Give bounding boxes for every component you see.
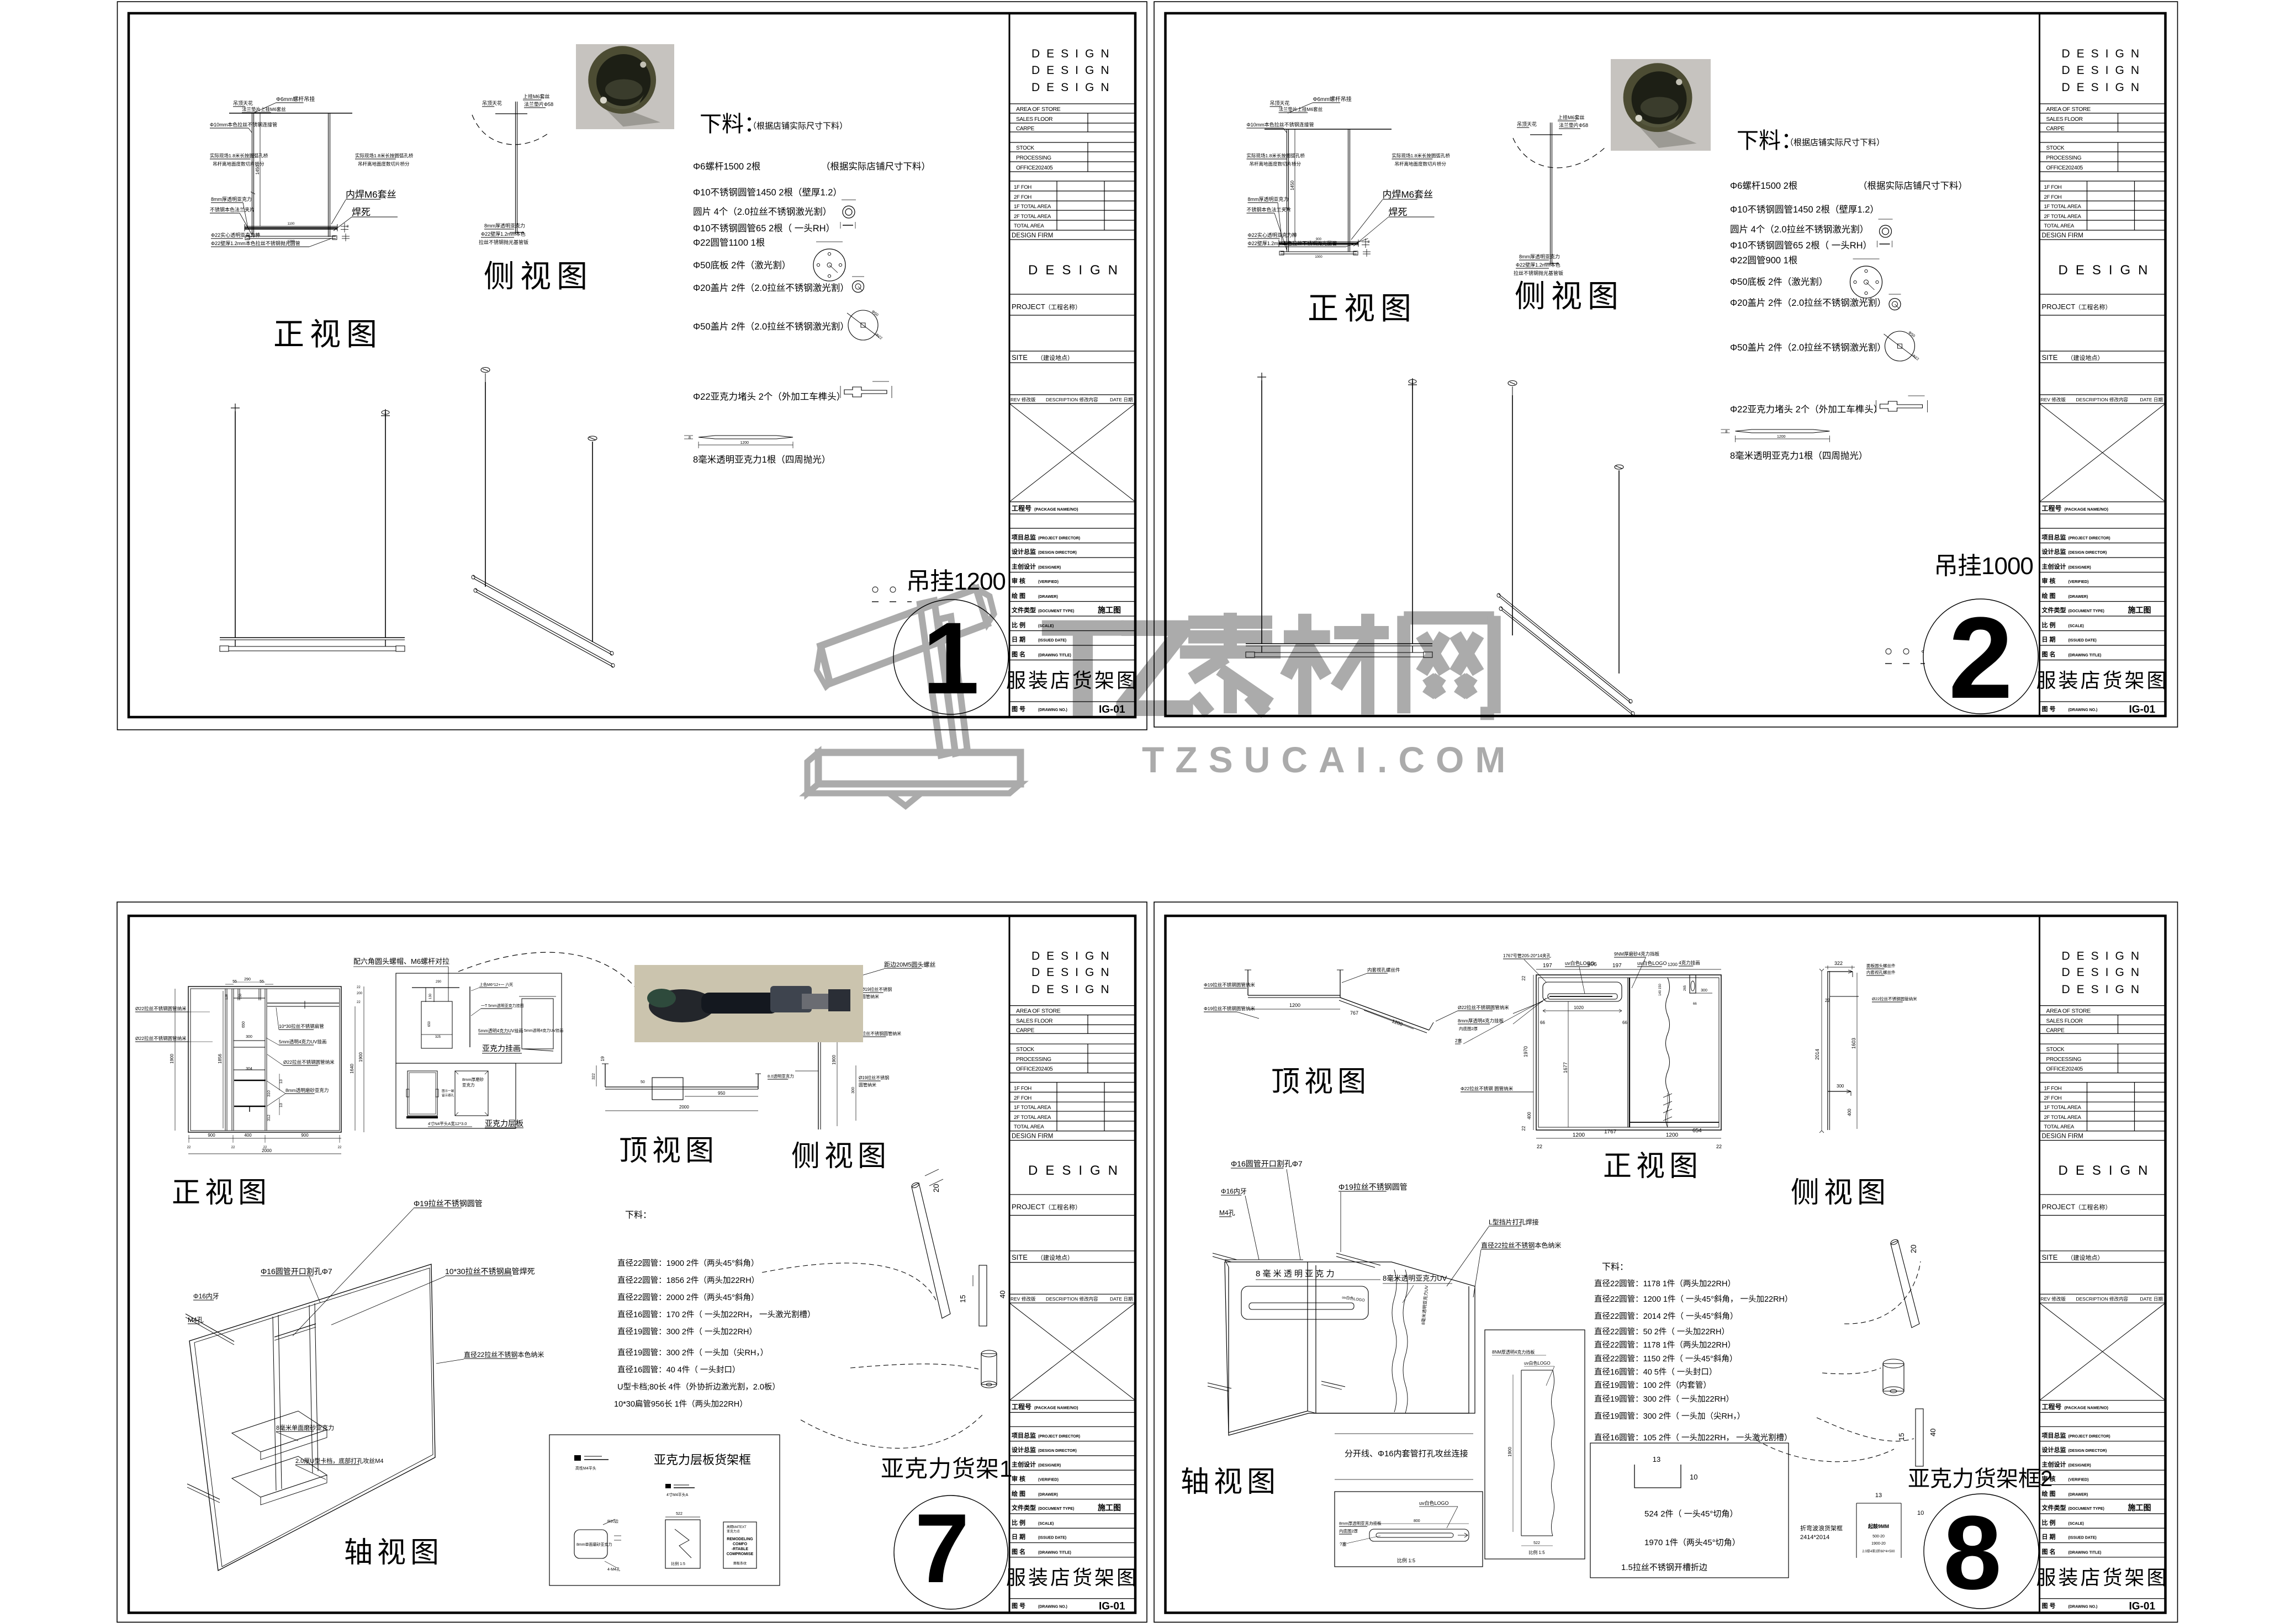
svg-text:DESCRIPTION 修改内容: DESCRIPTION 修改内容 [2076,397,2129,402]
svg-text:项目总监: 项目总监 [2042,533,2066,541]
svg-text:Ø22拉丝不锈钢圆管纳米: Ø22拉丝不锈钢圆管纳米 [1458,1005,1509,1010]
svg-text:项目总监: 项目总监 [1012,533,1036,541]
svg-text:DESCRIPTION 修改内容: DESCRIPTION 修改内容 [2076,1296,2129,1302]
svg-text:OFFICE202405: OFFICE202405 [1016,165,1053,171]
svg-text:300: 300 [1837,1084,1844,1089]
svg-text:22: 22 [338,1146,342,1149]
svg-text:654: 654 [1692,1128,1702,1134]
svg-text:图 号: 图 号 [1012,706,1025,713]
svg-text:2000: 2000 [262,1148,272,1153]
svg-text:2014: 2014 [1814,1049,1820,1060]
svg-text:(DESIGNER): (DESIGNER) [2068,566,2091,570]
svg-text:uv白色LOGO: uv白色LOGO [1565,960,1595,966]
svg-text:4寸N4平头A宽12*3.0: 4寸N4平头A宽12*3.0 [428,1121,467,1126]
svg-text:PROJECT: PROJECT [1012,1203,1045,1211]
svg-text:1677: 1677 [1563,1062,1568,1073]
svg-text:900: 900 [301,1133,309,1138]
svg-text:折弯波浪货架框: 折弯波浪货架框 [1800,1524,1843,1532]
svg-text:STOCK: STOCK [2046,145,2065,151]
svg-text:(VERIFIED): (VERIFIED) [2068,1478,2089,1482]
svg-text:8mm厚透明亚克力: 8mm厚透明亚克力 [1519,253,1560,259]
svg-text:面板圆头螺丝件: 面板圆头螺丝件 [1866,963,1896,968]
svg-text:1767号管205-20*14夹孔: 1767号管205-20*14夹孔 [1503,953,1551,958]
svg-text:Φ10不锈钢圆管1450 2根（壁厚1.2）: Φ10不锈钢圆管1450 2根（壁厚1.2） [693,187,842,198]
svg-text:吊杆离地面度数切片桥分: 吊杆离地面度数切片桥分 [213,161,264,167]
svg-text:1F TOTAL AREA: 1F TOTAL AREA [2044,1105,2082,1111]
svg-text:20: 20 [1909,1244,1918,1253]
svg-text:DATE 日期: DATE 日期 [1110,397,1133,402]
svg-text:DESIGN: DESIGN [2062,64,2146,77]
svg-text:DESIGN: DESIGN [2062,983,2146,996]
svg-text:Ø19拉丝不锈钢: Ø19拉丝不锈钢 [859,1075,889,1080]
svg-text:uv白色LOGO: uv白色LOGO [1524,1360,1551,1366]
svg-text:高精M4TEXT: 高精M4TEXT [727,1525,747,1529]
svg-text:正视图: 正视图 [1603,1150,1702,1182]
svg-text:正视图: 正视图 [273,317,383,352]
svg-text:Φ50盖片 2件（2.0拉丝不锈钢激光割）: Φ50盖片 2件（2.0拉丝不锈钢激光割） [693,321,849,332]
svg-text:SITE: SITE [2042,353,2058,362]
svg-text:(PACKAGE NAME/NO): (PACKAGE NAME/NO) [1034,507,1078,512]
svg-text:DATE 日期: DATE 日期 [2140,1296,2163,1302]
svg-text:1F TOTAL AREA: 1F TOTAL AREA [1014,1105,1051,1111]
svg-text:1F FOH: 1F FOH [1014,1085,1031,1091]
svg-text:8mm厚透明亚克力挂板: 8mm厚透明亚克力挂板 [1339,1520,1382,1526]
svg-text:项目总监: 项目总监 [1012,1431,1036,1439]
svg-text:950: 950 [718,1091,726,1096]
svg-text:审 核: 审 核 [1012,1475,1025,1482]
svg-text:起鼓9MM: 起鼓9MM [1868,1523,1889,1529]
svg-text:侧视图: 侧视图 [1515,279,1624,314]
svg-text:(VERIFIED): (VERIFIED) [1038,1478,1059,1482]
svg-text:300: 300 [246,1035,252,1039]
svg-text:(ISSUED DATE): (ISSUED DATE) [2068,639,2097,643]
svg-text:（根据店铺实际尺寸下料）: （根据店铺实际尺寸下料） [748,121,848,131]
svg-text:DESIGN: DESIGN [2062,47,2146,60]
svg-text:19: 19 [600,1056,605,1061]
svg-text:DESIGN: DESIGN [2062,966,2146,979]
svg-text:2F TOTAL AREA: 2F TOTAL AREA [1014,214,1051,220]
svg-text:8毫米透明亚克力1根（四周抛光）: 8毫米透明亚克力1根（四周抛光） [1730,450,1868,461]
svg-text:(PACKAGE NAME/NO): (PACKAGE NAME/NO) [1034,1405,1078,1410]
svg-text:1F FOH: 1F FOH [2044,1085,2062,1091]
svg-text:PROCESSING: PROCESSING [2046,1057,2082,1063]
svg-text:亚克力挂画: 亚克力挂画 [482,1044,521,1053]
svg-text:REMODELING: REMODELING [727,1537,753,1541]
svg-text:吊杆离地面度数切片桥分: 吊杆离地面度数切片桥分 [358,161,410,167]
svg-text:TOTAL AREA: TOTAL AREA [2044,223,2075,229]
svg-text:主创设计: 主创设计 [1012,563,1036,570]
svg-text:Φ22壁厚1.2mm本色拉丝不锈钢抛光圆管: Φ22壁厚1.2mm本色拉丝不锈钢抛光圆管 [1248,240,1337,246]
svg-text:COMPROMISE: COMPROMISE [727,1552,754,1556]
svg-text:（工程名称）: （工程名称） [2075,1203,2112,1211]
svg-text:DESIGN: DESIGN [1031,966,1116,979]
svg-text:uv白色LOGO: uv白色LOGO [1637,960,1667,966]
svg-text:REV 修改版: REV 修改版 [1011,397,1036,402]
svg-text:DESIGN: DESIGN [1031,81,1116,94]
svg-text:(PROJECT DIRECTOR): (PROJECT DIRECTOR) [1038,1435,1080,1439]
svg-text:亚克力层板: 亚克力层板 [485,1119,523,1128]
svg-text:DESIGN: DESIGN [2062,81,2146,94]
svg-text:STOCK: STOCK [1016,145,1034,151]
svg-text:(DESIGNER): (DESIGNER) [1038,566,1061,570]
svg-text:DESIGN FIRM: DESIGN FIRM [2042,1133,2083,1140]
svg-text:侧视图: 侧视图 [791,1141,891,1173]
svg-text:(DRAWING TITLE): (DRAWING TITLE) [2068,654,2102,657]
svg-text:AREA OF STORE: AREA OF STORE [2046,106,2091,113]
svg-text:REV 修改版: REV 修改版 [2041,1296,2066,1302]
svg-text:圆片 4个（2.0拉丝不锈钢激光割）: 圆片 4个（2.0拉丝不锈钢激光割） [693,206,832,217]
svg-text:5mm透明4克力UV挂画: 5mm透明4克力UV挂画 [524,1028,563,1033]
svg-text:图 名: 图 名 [2042,650,2056,658]
svg-text:直径22圆管：2014 2件（ 一头45°斜角）: 直径22圆管：2014 2件（ 一头45°斜角） [1594,1312,1738,1321]
svg-text:1603: 1603 [1851,1038,1856,1049]
svg-text:9NM厚磨砂4克力挡板: 9NM厚磨砂4克力挡板 [1614,951,1660,957]
svg-text:1.5拉丝不锈钢开槽折边: 1.5拉丝不锈钢开槽折边 [1621,1563,1707,1572]
svg-text:Φ19拉丝不锈钢圆管: Φ19拉丝不锈钢圆管 [414,1199,483,1208]
svg-text:4克力挂画: 4克力挂画 [1679,960,1700,966]
svg-text:SALES FLOOR: SALES FLOOR [2046,1018,2083,1024]
svg-text:下料：: 下料： [625,1210,652,1220]
svg-text:（根据实际店铺尺寸下料）: （根据实际店铺尺寸下料） [821,161,930,172]
svg-text:265: 265 [1684,985,1687,991]
svg-text:Φ19拉丝不锈钢圆管纳米: Φ19拉丝不锈钢圆管纳米 [1204,1006,1255,1011]
svg-text:322: 322 [1834,961,1843,966]
svg-text:上色M6*12+一 六死: 上色M6*12+一 六死 [479,982,513,987]
svg-text:法兰垫片上挂M6套丝: 法兰垫片上挂M6套丝 [1279,107,1323,112]
svg-text:服装店货架图: 服装店货架图 [1006,1566,1139,1589]
svg-text:2000: 2000 [679,1105,689,1110]
svg-text:不锈钢本色法兰夹片: 不锈钢本色法兰夹片 [210,206,255,213]
svg-text:(DRAWER): (DRAWER) [2068,595,2088,599]
svg-text:310: 310 [267,1090,271,1097]
svg-text:工程号: 工程号 [2042,1403,2062,1411]
svg-text:PROCESSING: PROCESSING [2046,155,2082,161]
svg-text:(VERIFIED): (VERIFIED) [1038,580,1059,584]
svg-text:CARPE: CARPE [2046,1027,2065,1033]
svg-text:322: 322 [592,1073,596,1080]
svg-text:1F FOH: 1F FOH [2044,184,2062,190]
svg-text:1F TOTAL AREA: 1F TOTAL AREA [2044,204,2082,210]
svg-text:内底图2厚: 内底图2厚 [1459,1026,1478,1031]
svg-text:290: 290 [436,980,442,984]
svg-text:亚克力: 亚克力 [462,1082,475,1088]
svg-text:40: 40 [1929,1429,1937,1436]
svg-text:2塞: 2塞 [1455,1038,1462,1043]
svg-text:22: 22 [357,1001,361,1004]
svg-text:TOTAL AREA: TOTAL AREA [1014,1124,1044,1130]
svg-text:197: 197 [1612,963,1622,969]
svg-text:M4孔: M4孔 [188,1316,204,1324]
svg-text:吊挂1200: 吊挂1200 [906,568,1006,595]
svg-text:COMFO: COMFO [733,1542,748,1546]
svg-text:66: 66 [1622,1020,1627,1025]
svg-text:设计总监: 设计总监 [1012,548,1036,555]
svg-text:DESIGN: DESIGN [2062,950,2146,962]
svg-text:（工程名称）: （工程名称） [1045,1203,1081,1211]
svg-text:L型挡片打孔焊接: L型挡片打孔焊接 [1489,1218,1539,1226]
svg-text:Ø22拉丝不锈钢圆管纳米: Ø22拉丝不锈钢圆管纳米 [1872,996,1917,1001]
svg-text:1900-20: 1900-20 [1871,1542,1886,1546]
svg-text:工程号: 工程号 [2042,504,2062,512]
svg-text:SALES FLOOR: SALES FLOOR [2046,116,2083,123]
svg-text:(DESIGN DIRECTOR): (DESIGN DIRECTOR) [1038,1449,1077,1453]
svg-text:STOCK: STOCK [1016,1047,1034,1053]
svg-text:8毫米透明亚克力UV: 8毫米透明亚克力UV [1383,1274,1447,1282]
svg-text:(DRAWING NO.): (DRAWING NO.) [1038,1605,1067,1609]
svg-text:(ISSUED DATE): (ISSUED DATE) [1038,1536,1066,1540]
svg-text:(DRAWER): (DRAWER) [1038,595,1058,599]
svg-text:Φ50底板 2件（激光割）: Φ50底板 2件（激光割） [1730,277,1828,287]
svg-text:实际现场1.8米长按圆弧孔桥: 实际现场1.8米长按圆弧孔桥 [355,153,414,158]
svg-text:DESCRIPTION 修改内容: DESCRIPTION 修改内容 [1046,397,1098,402]
svg-text:绘 图: 绘 图 [2042,592,2056,600]
svg-text:(DOCUMENT TYPE): (DOCUMENT TYPE) [2068,609,2104,613]
svg-text:Φ10不锈钢圆管65 2根（ 一头RH）: Φ10不锈钢圆管65 2根（ 一头RH） [1730,240,1872,251]
svg-text:55: 55 [260,980,264,984]
svg-text:日 期: 日 期 [1012,635,1025,643]
svg-text:8mm厚透明亚克力: 8mm厚透明亚克力 [211,196,252,202]
svg-text:DESIGN: DESIGN [2059,1163,2156,1178]
svg-text:Φ22壁厚1.2mm本色: Φ22壁厚1.2mm本色 [1516,262,1560,268]
svg-text:（工程名称）: （工程名称） [2075,303,2112,311]
svg-text:R10边: R10边 [607,1519,618,1524]
svg-text:1900: 1900 [358,1052,363,1062]
svg-text:(PROJECT DIRECTOR): (PROJECT DIRECTOR) [2068,1435,2110,1439]
svg-text:1640: 1640 [350,1064,355,1074]
svg-text:1900: 1900 [832,1055,837,1065]
svg-text:（根据店铺实际尺寸下料）: （根据店铺实际尺寸下料） [1785,138,1885,147]
svg-text:高性M4平头: 高性M4平头 [575,1466,596,1471]
svg-text:文件类型: 文件类型 [1012,606,1036,614]
svg-text:10*30拉丝不锈钢扁管焊死: 10*30拉丝不锈钢扁管焊死 [445,1267,535,1276]
svg-text:配六角圆头螺帽、M6螺杆对拉: 配六角圆头螺帽、M6螺杆对拉 [353,957,449,966]
svg-text:325: 325 [435,1036,441,1039]
svg-text:8: 8 [689,436,691,440]
svg-text:(SCALE): (SCALE) [1038,1522,1054,1526]
svg-text:140 150: 140 150 [1659,984,1662,996]
svg-text:Φ16圆管开口割孔Φ7: Φ16圆管开口割孔Φ7 [261,1267,332,1276]
svg-text:13: 13 [279,1103,283,1107]
svg-text:DESIGN FIRM: DESIGN FIRM [1012,232,1053,239]
svg-text:1970: 1970 [1523,1046,1528,1057]
svg-text:200: 200 [357,992,363,995]
svg-text:1100: 1100 [288,222,295,226]
svg-text:DESIGN: DESIGN [1028,263,1125,278]
svg-text:顶视图: 顶视图 [619,1135,718,1167]
svg-text:13: 13 [1875,1492,1882,1499]
svg-text:SALES FLOOR: SALES FLOOR [1016,1018,1052,1024]
svg-text:工程号: 工程号 [1012,1403,1031,1411]
svg-text:直径16圆管：40 4件（ 一头封口）: 直径16圆管：40 4件（ 一头封口） [617,1365,740,1375]
svg-text:内套视孔螺丝件: 内套视孔螺丝件 [1367,967,1400,973]
svg-text:绘 图: 绘 图 [1012,1489,1025,1497]
svg-text:IG-01: IG-01 [2129,1601,2156,1613]
svg-text:比例 1:5: 比例 1:5 [1397,1557,1415,1563]
svg-text:（工程名称）: （工程名称） [1045,303,1081,311]
svg-text:日 期: 日 期 [2042,635,2056,643]
svg-text:Φ16圆管开口割孔Φ7: Φ16圆管开口割孔Φ7 [1231,1159,1303,1168]
svg-text:DATE 日期: DATE 日期 [1110,1296,1133,1302]
svg-text:（建设地点）: （建设地点） [1037,1254,1073,1261]
svg-text:8.0透明亚克力: 8.0透明亚克力 [768,1073,794,1079]
svg-text:内焊M6套丝: 内焊M6套丝 [1383,189,1433,200]
svg-text:Φ16内牙: Φ16内牙 [1221,1187,1247,1195]
svg-text:吊挂1000: 吊挂1000 [1934,553,2033,580]
svg-text:TOTAL AREA: TOTAL AREA [2044,1124,2075,1130]
svg-text:亚克力层板货架框: 亚克力层板货架框 [654,1453,751,1467]
svg-text:300: 300 [851,1087,855,1094]
svg-text:2414*2014: 2414*2014 [1800,1534,1829,1541]
svg-text:项目总监: 项目总监 [2042,1431,2066,1439]
svg-text:吊顶天花: 吊顶天花 [482,100,502,106]
svg-text:正视图: 正视图 [172,1177,271,1209]
svg-text:Φ20盖片 2件（2.0拉丝不锈钢激光割）: Φ20盖片 2件（2.0拉丝不锈钢激光割） [1730,298,1886,308]
svg-text:150: 150 [239,993,242,999]
svg-text:图 名: 图 名 [1012,1547,1025,1555]
svg-text:法兰垫片上挂M6套丝: 法兰垫片上挂M6套丝 [242,107,286,112]
svg-text:8NM厚透明4克力挡板: 8NM厚透明4克力挡板 [1492,1349,1535,1355]
svg-text:15: 15 [1897,1433,1906,1441]
svg-text:直径19圆管：300 2件（ 一头加（尖RH，）: 直径19圆管：300 2件（ 一头加（尖RH，） [617,1348,768,1357]
svg-text:5mm透明4克力UV挂画: 5mm透明4克力UV挂画 [478,1028,523,1033]
svg-text:(SCALE): (SCALE) [2068,1522,2084,1526]
svg-text:比 例: 比 例 [1012,1519,1025,1526]
svg-text:Φ19拉丝不锈钢圆管: Φ19拉丝不锈钢圆管 [1339,1182,1408,1191]
svg-text:比 例: 比 例 [1012,621,1025,629]
svg-text:(DRAWING TITLE): (DRAWING TITLE) [2068,1551,2102,1555]
svg-text:4-M4孔: 4-M4孔 [607,1567,620,1572]
svg-text:Φ22拉丝不锈钢 圆管纳米: Φ22拉丝不锈钢 圆管纳米 [1461,1086,1514,1091]
svg-text:(DESIGN DIRECTOR): (DESIGN DIRECTOR) [2068,551,2107,555]
svg-text:(VERIFIED): (VERIFIED) [2068,580,2089,584]
svg-text:Ø22拉丝不锈钢圆管纳米: Ø22拉丝不锈钢圆管纳米 [135,1036,187,1041]
svg-text:8mm单面磨砂亚克力: 8mm单面磨砂亚克力 [576,1542,612,1547]
svg-text:焊死: 焊死 [352,207,371,218]
svg-text:2F FOH: 2F FOH [2044,194,2062,200]
svg-text:1200: 1200 [1777,435,1786,439]
svg-text:8: 8 [1726,430,1728,434]
svg-text:DESIGN FIRM: DESIGN FIRM [2042,232,2083,239]
svg-text:2: 2 [1949,593,2013,723]
svg-text:55: 55 [232,980,237,984]
svg-text:2F FOH: 2F FOH [2044,1095,2062,1101]
svg-text:直径19圆管：300 2件（ 一头加22RH）: 直径19圆管：300 2件（ 一头加22RH） [1594,1394,1734,1404]
svg-text:15: 15 [959,1295,967,1303]
svg-text:直径19圆管：300 2件（ 一头加22RH）: 直径19圆管：300 2件（ 一头加22RH） [617,1327,757,1336]
svg-text:IG-01: IG-01 [1099,704,1125,715]
svg-text:直径22拉丝不锈钢本色纳米: 直径22拉丝不锈钢本色纳米 [464,1350,544,1359]
svg-text:22: 22 [231,1146,235,1149]
svg-text:Φ19拉丝不锈钢圆管纳米: Φ19拉丝不锈钢圆管纳米 [1204,982,1255,988]
svg-text:(PROJECT DIRECTOR): (PROJECT DIRECTOR) [2068,537,2110,540]
svg-text:面板条纹: 面板条纹 [733,1561,747,1566]
svg-text:OFFICE202405: OFFICE202405 [2046,165,2083,171]
svg-text:2F FOH: 2F FOH [1014,1095,1031,1101]
svg-text:1200: 1200 [1668,962,1678,967]
svg-text:比例 1:5: 比例 1:5 [1528,1550,1545,1555]
svg-text:66: 66 [1540,1020,1545,1025]
svg-text:圆管纳米: 圆管纳米 [859,1082,876,1088]
svg-text:直径22圆管：1178 1件（两头加22RH）: 直径22圆管：1178 1件（两头加22RH） [1594,1340,1736,1350]
svg-text:522: 522 [1533,1541,1540,1545]
svg-text:AREA OF STORE: AREA OF STORE [1016,106,1061,113]
svg-text:1856: 1856 [218,1054,223,1064]
svg-text:1900: 1900 [170,1054,174,1064]
svg-text:距边20M5圆头螺丝: 距边20M5圆头螺丝 [884,961,936,968]
svg-text:一T 5mm透明亚克力挂图: 一T 5mm透明亚克力挂图 [481,1003,524,1008]
svg-text:PROCESSING: PROCESSING [1016,1057,1051,1063]
svg-text:400: 400 [244,1133,252,1138]
svg-text:法兰垫片Φ58: 法兰垫片Φ58 [1559,122,1588,128]
svg-text:主创设计: 主创设计 [2042,563,2066,570]
svg-text:REV 修改版: REV 修改版 [2041,397,2066,402]
svg-text:?塞: ?塞 [1340,1541,1346,1547]
svg-text:施工图: 施工图 [1098,606,1121,614]
svg-text:PROCESSING: PROCESSING [1016,155,1051,161]
svg-text:CARPE: CARPE [1016,1027,1035,1033]
svg-text:(DRAWER): (DRAWER) [2068,1493,2088,1497]
svg-text:日 期: 日 期 [1012,1533,1025,1541]
svg-text:SITE: SITE [1012,353,1028,362]
svg-text:13: 13 [279,1079,283,1084]
svg-text:文件类型: 文件类型 [2042,1504,2066,1511]
svg-text:312: 312 [267,1115,271,1121]
svg-text:不锈钢本色法兰夹片: 不锈钢本色法兰夹片 [1247,206,1292,213]
svg-text:文件类型: 文件类型 [1012,1504,1036,1511]
svg-text:(PACKAGE NAME/NO): (PACKAGE NAME/NO) [2065,507,2109,512]
svg-text:128: 128 [225,994,229,1000]
svg-text:吊顶天花: 吊顶天花 [1270,100,1290,106]
svg-text:400: 400 [1527,1112,1532,1120]
svg-text:正视图: 正视图 [1308,291,1417,326]
svg-text:CARPE: CARPE [2046,126,2065,132]
svg-text:比例 1:5: 比例 1:5 [671,1561,685,1566]
svg-text:上挂M6套丝: 上挂M6套丝 [523,93,550,99]
svg-text:内底图2厚: 内底图2厚 [1339,1528,1358,1534]
svg-text:STOCK: STOCK [2046,1047,2065,1053]
svg-text:7: 7 [915,1493,970,1603]
svg-text:Ø22拉丝不锈钢圆管纳米: Ø22拉丝不锈钢圆管纳米 [283,1059,335,1065]
svg-text:(DESIGNER): (DESIGNER) [2068,1464,2091,1468]
svg-text:施工图: 施工图 [2128,606,2151,614]
svg-text:Φ22实心透明亚克力棒: Φ22实心透明亚克力棒 [211,232,260,238]
svg-text:直径19圆管：100 2件（内套管）: 直径19圆管：100 2件（内套管） [1594,1381,1711,1390]
svg-text:法兰垫片Φ58: 法兰垫片Φ58 [524,101,553,107]
svg-text:设计总监: 设计总监 [1012,1446,1036,1454]
svg-text:22: 22 [1521,1126,1526,1131]
svg-text:内套视孔螺丝件: 内套视孔螺丝件 [1866,969,1896,975]
svg-text:Φ22壁厚1.2mm本色拉丝不锈钢抛光圆管: Φ22壁厚1.2mm本色拉丝不锈钢抛光圆管 [211,240,300,246]
svg-text:1200: 1200 [1289,1003,1300,1008]
svg-text:304: 304 [246,1067,252,1071]
svg-text:DESIGN: DESIGN [1031,983,1116,996]
svg-text:日 期: 日 期 [2042,1533,2056,1541]
svg-text:Φ10不锈钢圆管65 2根（ 一头RH）: Φ10不锈钢圆管65 2根（ 一头RH） [693,223,835,234]
svg-text:（根据实际店铺尺寸下料）: （根据实际店铺尺寸下料） [1858,181,1967,191]
svg-text:(DRAWING TITLE): (DRAWING TITLE) [1038,654,1071,657]
svg-text:130: 130 [429,993,432,999]
svg-text:1970 1件（两头45°切角）: 1970 1件（两头45°切角） [1644,1538,1740,1547]
svg-text:焊死: 焊死 [1389,207,1408,218]
svg-text:1900: 1900 [1507,1447,1512,1457]
svg-text:2F TOTAL AREA: 2F TOTAL AREA [2044,1115,2082,1121]
svg-text:22: 22 [1716,1144,1722,1149]
svg-text:工程号: 工程号 [1012,504,1031,512]
svg-text:uv白色LOGO: uv白色LOGO [1419,1500,1449,1506]
svg-text:8mm透明磨砂亚克力: 8mm透明磨砂亚克力 [285,1088,329,1093]
svg-text:图 名: 图 名 [1012,650,1025,658]
svg-text:PROJECT: PROJECT [2042,1203,2076,1211]
